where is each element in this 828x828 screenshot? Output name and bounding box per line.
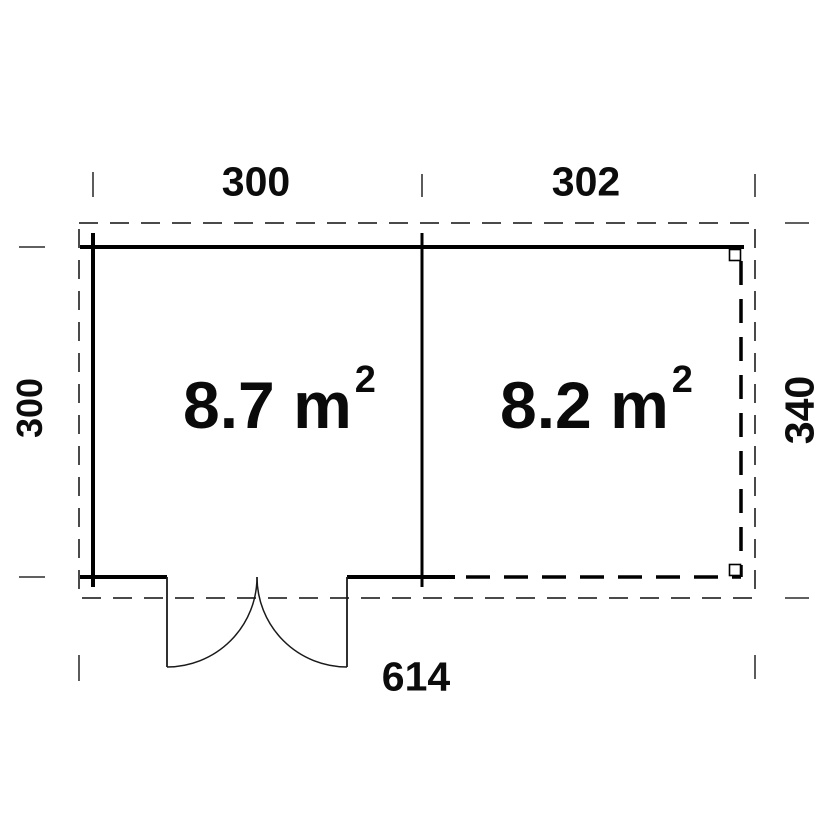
left-room-area-label: 8.7 m 2 bbox=[183, 372, 376, 438]
door-left-swing-arc bbox=[167, 577, 257, 667]
right-room-area-superscript: 2 bbox=[672, 361, 693, 399]
dim-left-height: 300 bbox=[12, 378, 48, 438]
corner-post-bottom-right bbox=[730, 565, 741, 576]
dim-bottom-total-width: 614 bbox=[382, 657, 450, 698]
dim-top-right-width: 302 bbox=[552, 162, 620, 203]
dim-right-height: 340 bbox=[780, 376, 821, 444]
right-room-area-value: 8.2 m bbox=[500, 372, 669, 438]
right-room-area-label: 8.2 m 2 bbox=[500, 372, 693, 438]
dim-top-left-width: 300 bbox=[222, 162, 290, 203]
floor-plan-drawing bbox=[0, 0, 828, 828]
left-room-area-value: 8.7 m bbox=[183, 372, 352, 438]
floor-plan-page: 300 302 300 340 614 8.7 m 2 8.2 m 2 bbox=[0, 0, 828, 828]
left-room-area-superscript: 2 bbox=[355, 361, 376, 399]
corner-post-top-right bbox=[730, 250, 741, 261]
door-right-swing-arc bbox=[257, 577, 347, 667]
